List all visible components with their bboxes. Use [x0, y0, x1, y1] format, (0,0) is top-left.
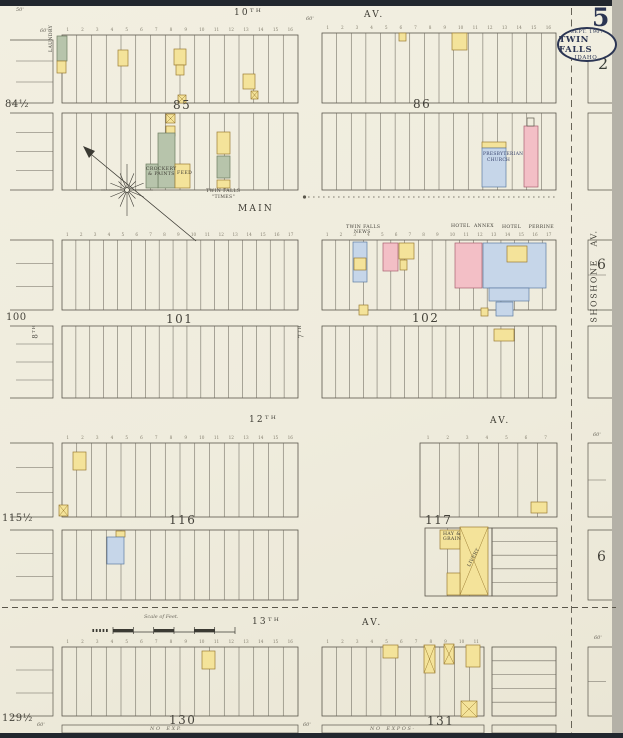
- lot-number: 6: [135, 233, 138, 237]
- lot-number: 15: [531, 26, 536, 30]
- lot-number: 7: [155, 436, 158, 440]
- lot-number: 12: [487, 26, 492, 30]
- caption-twin-falls-times-1: TWIN FALLS: [206, 190, 240, 195]
- lot-number: 1: [326, 640, 329, 644]
- lot-number: 13: [243, 28, 248, 32]
- lot-number: 3: [356, 26, 359, 30]
- lot-number: 15: [273, 640, 278, 644]
- lot-number: 14: [258, 436, 263, 440]
- lot-number: 11: [214, 436, 219, 440]
- lot-number: 3: [94, 233, 97, 237]
- lot-number: 13: [233, 233, 238, 237]
- dim-60ft-f: 60': [594, 636, 602, 641]
- block-131: 131: [427, 715, 454, 727]
- lot-number: 6: [140, 436, 143, 440]
- caption-crockery-2: & PAINTS: [148, 173, 175, 178]
- block-102: 102: [412, 312, 439, 324]
- lot-number: 4: [367, 233, 370, 237]
- lot-number: 3: [96, 640, 99, 644]
- lot-number: 12: [229, 28, 234, 32]
- street-12th: 12ᵀᴴ: [249, 416, 278, 425]
- lot-number: 5: [125, 28, 128, 32]
- lot-number: 12: [229, 640, 234, 644]
- lot-number: 9: [184, 28, 187, 32]
- map-labels: 10ᵀᴴAV.MAIN12ᵀᴴAV.13ᵀᴴAV.SHOSHONE AV.7ᵀᴴ…: [0, 0, 623, 738]
- block-85: 85: [173, 99, 191, 111]
- caption-presbyterian-2: CHURCH: [487, 159, 510, 163]
- dim-60ft-d: 60': [303, 723, 311, 728]
- block-117: 117: [425, 514, 452, 526]
- caption-hotel-perrine: HOTEL PERRINE: [502, 226, 554, 231]
- street-13th-av: AV.: [362, 619, 382, 628]
- lot-number: 14: [516, 26, 521, 30]
- lot-number: 1: [66, 436, 69, 440]
- block-6-upper: 6: [597, 258, 606, 272]
- lot-number: 11: [205, 233, 210, 237]
- caption-hotel-annex: HOTEL ANNEX: [451, 225, 494, 230]
- lot-number: 3: [356, 640, 359, 644]
- lot-number: 12: [477, 233, 482, 237]
- lot-number: 2: [341, 26, 344, 30]
- lot-number: 6: [399, 26, 402, 30]
- lot-number: 5: [125, 436, 128, 440]
- dim-60ft-e: 60': [593, 433, 601, 438]
- lot-number: 9: [184, 640, 187, 644]
- lot-number: 3: [353, 233, 356, 237]
- street-shoshone: SHOSHONE AV.: [591, 229, 599, 322]
- lot-number: 10: [459, 640, 464, 644]
- lot-number: 4: [111, 28, 114, 32]
- lot-number: 5: [125, 640, 128, 644]
- lot-number: 17: [288, 233, 293, 237]
- stamp-state: IDAHO.: [575, 55, 600, 61]
- lot-number: 11: [214, 28, 219, 32]
- lot-number: 2: [81, 640, 84, 644]
- lot-number: 5: [385, 26, 388, 30]
- lot-number: 5: [121, 233, 124, 237]
- lot-number: 4: [111, 640, 114, 644]
- street-7th: 7ᵀᴴ: [299, 324, 306, 338]
- block-129half: 129½: [2, 714, 33, 724]
- caption-no-exp-left: N O E X P.: [150, 727, 181, 732]
- lot-number: 2: [446, 436, 449, 440]
- lot-number: 8: [170, 28, 173, 32]
- lot-number: 12: [229, 436, 234, 440]
- lot-number: 16: [532, 233, 537, 237]
- lot-number: 4: [111, 436, 114, 440]
- lot-number: 2: [341, 640, 344, 644]
- title-stamp: SEPT. 1907 TWIN FALLS IDAHO.: [557, 27, 617, 62]
- lot-number: 13: [502, 26, 507, 30]
- lot-number: 15: [273, 436, 278, 440]
- lot-number: 7: [544, 436, 547, 440]
- lot-number: 15: [273, 28, 278, 32]
- caption-feed: FEED: [177, 172, 192, 177]
- lot-number: 6: [140, 640, 143, 644]
- lot-number: 1: [326, 233, 329, 237]
- lot-number: 16: [546, 26, 551, 30]
- lot-number: 11: [464, 233, 469, 237]
- caption-no-expos-right: N O E X P O S -: [370, 727, 414, 732]
- block-115half: 115½: [2, 514, 33, 524]
- dim-50ft: 50': [16, 8, 24, 13]
- block-116: 116: [169, 514, 196, 526]
- block-86: 86: [413, 98, 431, 110]
- lot-number: 2: [81, 436, 84, 440]
- lot-number: 15: [260, 233, 265, 237]
- street-10th: 10ᵀᴴ: [234, 9, 263, 18]
- lot-number: 1: [66, 640, 69, 644]
- caption-laundry: LAUNDRY: [50, 25, 55, 52]
- lot-number: 3: [96, 436, 99, 440]
- lot-number: 13: [243, 436, 248, 440]
- lot-number: 7: [415, 640, 418, 644]
- caption-livery: LIVERY: [468, 548, 482, 568]
- lot-number: 7: [408, 233, 411, 237]
- lot-number: 4: [486, 436, 489, 440]
- lot-number: 9: [443, 26, 446, 30]
- lot-number: 10: [199, 436, 204, 440]
- lot-number: 13: [243, 640, 248, 644]
- scale-caption: Scale of Feet.: [144, 615, 179, 620]
- lot-number: 3: [466, 436, 469, 440]
- lot-number: 1: [326, 26, 329, 30]
- caption-twin-falls-times-2: "TIMES": [212, 196, 235, 201]
- lot-number: 10: [458, 26, 463, 30]
- lot-number: 16: [288, 28, 293, 32]
- lot-number: 6: [400, 640, 403, 644]
- lot-number: 7: [155, 640, 158, 644]
- lot-number: 4: [370, 26, 373, 30]
- lot-number: 16: [288, 436, 293, 440]
- lot-number: 10: [199, 28, 204, 32]
- lot-number: 1: [427, 436, 430, 440]
- lot-number: 10: [191, 233, 196, 237]
- lot-number: 6: [525, 436, 528, 440]
- lot-number: 9: [436, 233, 439, 237]
- lot-number: 10: [450, 233, 455, 237]
- block-130: 130: [169, 714, 196, 726]
- lot-number: 16: [288, 640, 293, 644]
- lot-number: 14: [505, 233, 510, 237]
- street-main: MAIN: [238, 205, 274, 214]
- lot-number: 13: [491, 233, 496, 237]
- lot-number: 16: [274, 233, 279, 237]
- lot-number: 1: [66, 233, 69, 237]
- lot-number: 15: [519, 233, 524, 237]
- lot-number: 14: [246, 233, 251, 237]
- street-10th-av: AV.: [364, 11, 384, 20]
- block-101: 101: [166, 313, 193, 325]
- dim-60ft-b: 60': [306, 17, 314, 22]
- block-100: 100: [6, 313, 27, 323]
- street-12th-av: AV.: [490, 417, 510, 426]
- lot-number: 7: [414, 26, 417, 30]
- lot-number: 11: [473, 26, 478, 30]
- lot-number: 12: [219, 233, 224, 237]
- lot-number: 2: [80, 233, 83, 237]
- lot-number: 4: [108, 233, 111, 237]
- lot-number: 8: [422, 233, 425, 237]
- lot-number: 9: [184, 436, 187, 440]
- lot-number: 8: [170, 640, 173, 644]
- lot-number: 9: [177, 233, 180, 237]
- lot-number: 7: [149, 233, 152, 237]
- lot-number: 6: [140, 28, 143, 32]
- sanborn-map-page: 10ᵀᴴAV.MAIN12ᵀᴴAV.13ᵀᴴAV.SHOSHONE AV.7ᵀᴴ…: [0, 0, 623, 738]
- lot-number: 7: [155, 28, 158, 32]
- lot-number: 1: [66, 28, 69, 32]
- street-8th: 8ᵀᴴ: [33, 324, 40, 338]
- lot-number: 10: [199, 640, 204, 644]
- dim-60ft-c: 60': [37, 723, 45, 728]
- dim-60ft-a: 60': [40, 29, 48, 34]
- lot-number: 8: [429, 640, 432, 644]
- lot-number: 8: [429, 26, 432, 30]
- street-13th: 13ᵀᴴ: [252, 618, 281, 627]
- lot-number: 14: [258, 28, 263, 32]
- lot-number: 6: [395, 233, 398, 237]
- caption-presbyterian-1: PRESBYTERIAN: [483, 153, 523, 157]
- lot-number: 5: [505, 436, 508, 440]
- lot-number: 8: [170, 436, 173, 440]
- block-6-lower: 6: [597, 550, 606, 564]
- caption-hay-grain-2: GRAIN: [443, 538, 461, 543]
- stamp-city: TWIN FALLS: [559, 35, 615, 55]
- lot-number: 3: [96, 28, 99, 32]
- lot-number: 2: [340, 233, 343, 237]
- lot-number: 17: [546, 233, 551, 237]
- lot-number: 4: [371, 640, 374, 644]
- lot-number: 11: [214, 640, 219, 644]
- lot-number: 5: [381, 233, 384, 237]
- lot-number: 11: [474, 640, 479, 644]
- lot-number: 8: [163, 233, 166, 237]
- lot-number: 14: [258, 640, 263, 644]
- lot-number: 2: [81, 28, 84, 32]
- block-84half: 84½: [5, 100, 29, 110]
- lot-number: 9: [444, 640, 447, 644]
- scan-border-bottom: [0, 733, 623, 738]
- lot-number: 5: [385, 640, 388, 644]
